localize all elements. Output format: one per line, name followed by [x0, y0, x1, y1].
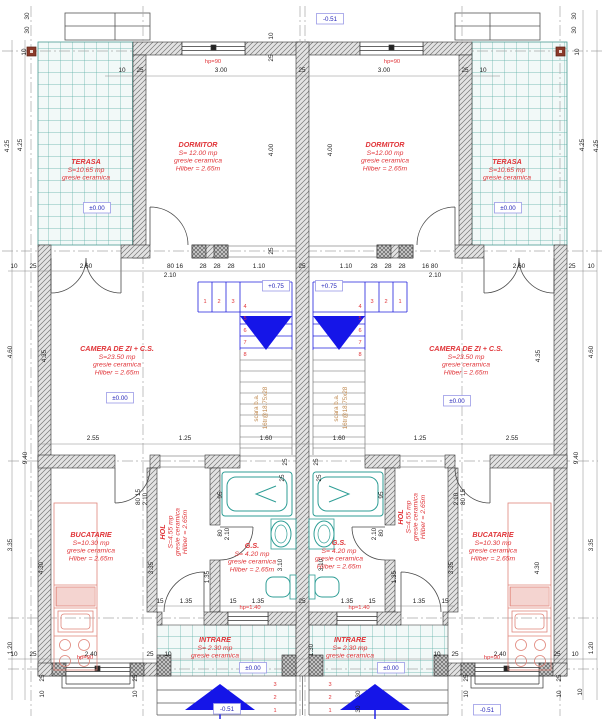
dim-label: 25 — [461, 67, 469, 74]
step-number: 1 — [398, 299, 401, 305]
room-label-gs-left: G.S. — [245, 541, 259, 550]
room-label-gs-left: gresie ceramica — [228, 559, 276, 566]
dim-label: 4.30 — [534, 561, 541, 574]
parapet-label: hp=90 — [77, 655, 93, 661]
dim-label: 4.25 — [593, 139, 600, 152]
dim-label: 10 — [132, 690, 139, 698]
step-number: 5 — [243, 316, 246, 322]
step-number: 2 — [384, 299, 387, 305]
dim-label: 3.35 — [7, 538, 14, 551]
dim-label: 3.35 — [448, 561, 455, 574]
dim-label: 30 — [355, 690, 362, 698]
stair-note: 16tr@18.75x28 — [342, 386, 349, 429]
dim-label: 25 — [268, 54, 275, 62]
step-number: 3 — [328, 682, 331, 688]
dim-label: 25 — [556, 674, 563, 682]
dim-label: 2.10 — [453, 492, 460, 505]
room-label-dormitor-left: S= 12.00 mp — [179, 150, 218, 157]
dim-label: 10 — [10, 263, 18, 270]
room-label-terasa-right: S=10.65 mp — [489, 167, 526, 174]
parapet-label: hp=1.40 — [348, 605, 369, 611]
level-marker: ±0.00 — [500, 205, 516, 212]
dim-label: 25 — [136, 67, 144, 74]
room-label-terasa-left: S=10.65 mp — [68, 167, 105, 174]
step-number: 1 — [328, 708, 331, 714]
parapet-label: hp=1.40 — [239, 605, 260, 611]
dim-label: 3.35 — [588, 538, 595, 551]
dim-label: 2.10 — [224, 527, 231, 540]
step-number: 4 — [358, 304, 361, 310]
dim-label: 15 — [156, 598, 164, 605]
dim-label: 3.35 — [148, 561, 155, 574]
parapet-label: hp=90 — [384, 59, 400, 65]
dim-label: 25 — [29, 651, 37, 658]
dim-label: 1.20 — [7, 641, 14, 654]
dim-label: 1.35 — [204, 570, 211, 583]
dim-label: 28 — [384, 263, 392, 270]
dim-label: 4.00 — [327, 143, 334, 156]
step-number: 8 — [243, 352, 246, 358]
dim-label: 10 — [433, 651, 441, 658]
level-marker: +0.75 — [321, 283, 337, 290]
room-label-terasa-left: TERASA — [71, 157, 101, 166]
dim-label: 4.25 — [4, 139, 11, 152]
room-label-intrare-right: gresie ceramica — [326, 653, 374, 660]
dim-label: 30 — [24, 26, 31, 34]
level-marker: +0.75 — [268, 283, 284, 290]
dim-label: 28 — [370, 263, 378, 270]
level-marker: ±0.00 — [383, 665, 399, 672]
stair-note: scara b.a. — [333, 394, 340, 421]
room-label-intrare-left: gresie ceramica — [191, 653, 239, 660]
dim-label: 15 — [368, 598, 376, 605]
room-label-bucatarie-left: Hliber = 2.65m — [69, 555, 114, 562]
dim-label: 25 — [568, 263, 576, 270]
dim-label: 25 — [553, 651, 561, 658]
dim-label: 25 — [279, 474, 286, 482]
dim-label: 3.10 — [277, 558, 284, 571]
dim-label: 95 — [217, 491, 224, 499]
dim-label: 30 — [24, 12, 31, 20]
room-label-hol-left: S=4.55 mp — [167, 515, 174, 548]
dim-label: 4.35 — [535, 349, 542, 362]
dim-label: 80 — [217, 529, 224, 537]
dim-label: 1.60 — [260, 435, 273, 442]
dim-label: 1.25 — [179, 435, 192, 442]
step-number: 2 — [328, 695, 331, 701]
dim-label: 2.60 — [513, 263, 526, 270]
room-label-dormitor-left: Hliber = 2.65m — [176, 165, 221, 172]
room-label-terasa-left: gresie ceramica — [62, 175, 110, 182]
room-label-hol-right: gresie ceramica — [413, 493, 420, 541]
room-label-camera-zi-left: S=23.50 mp — [99, 354, 136, 361]
room-label-hol-left: HOL — [158, 524, 167, 539]
dim-label: 1.35 — [391, 570, 398, 583]
dim-label: 3.10 — [318, 558, 325, 571]
dim-label: 10 — [577, 688, 584, 696]
dim-label: 80 15 — [135, 489, 142, 505]
dim-label: 2.10 — [429, 272, 442, 279]
step-number: 2 — [273, 695, 276, 701]
room-label-terasa-right: gresie ceramica — [483, 175, 531, 182]
dim-label: 25 — [316, 474, 323, 482]
level-marker: ±0.00 — [245, 665, 261, 672]
dim-label: 1.10 — [253, 263, 266, 270]
dim-label: 4.60 — [7, 345, 14, 358]
level-marker: -0.51 — [323, 16, 338, 23]
room-label-intrare-right: S= 2.30 mp — [333, 645, 368, 652]
dim-label: 2.10 — [164, 272, 177, 279]
dim-label: 30 — [571, 12, 578, 20]
room-label-gs-left: Hliber = 2.65m — [230, 566, 275, 573]
room-label-camera-zi-right: Hliber = 2.65m — [444, 369, 489, 376]
dim-label: 30 — [571, 26, 578, 34]
dim-label: 15 — [229, 598, 237, 605]
dim-label: 28 — [213, 263, 221, 270]
dim-label: 25 — [268, 247, 275, 255]
room-label-camera-zi-left: Hliber = 2.65m — [95, 369, 140, 376]
room-label-bucatarie-left: S=10.30 mp — [73, 540, 110, 547]
dim-label: 10 — [571, 651, 579, 658]
room-label-bucatarie-left: BUCATARIE — [70, 530, 111, 539]
stair-note: 16tr@18.75x28 — [262, 386, 269, 429]
dim-label: 2.10 — [371, 527, 378, 540]
step-number: 7 — [243, 340, 246, 346]
dim-label: 2.55 — [87, 435, 100, 442]
dim-label: 3.00 — [378, 67, 391, 74]
room-label-dormitor-right: DORMITOR — [366, 140, 406, 149]
parapet-label: hp=90 — [205, 59, 221, 65]
step-number: 7 — [358, 340, 361, 346]
room-label-bucatarie-right: Hliber = 2.65m — [471, 555, 516, 562]
dim-label: 10 — [268, 32, 275, 40]
room-label-gs-right: S= 4.20 mp — [322, 548, 357, 555]
step-number: 5 — [358, 316, 361, 322]
room-label-hol-right: HOL — [396, 509, 405, 524]
room-label-camera-zi-left: CAMERA DE ZI + C.S. — [80, 344, 154, 353]
dim-label: 10 — [574, 48, 581, 56]
dim-label: 80 15 — [460, 489, 467, 505]
dim-label: 25 — [298, 67, 306, 74]
step-number: 4 — [243, 304, 246, 310]
dim-label: 9.40 — [22, 451, 29, 464]
dim-label: 1.35 — [180, 598, 193, 605]
dim-label: 10 — [463, 690, 470, 698]
dim-label: 1.35 — [252, 598, 265, 605]
step-number: 6 — [243, 328, 246, 334]
dim-label: 10 — [587, 263, 595, 270]
dim-label: 28 — [199, 263, 207, 270]
room-label-intrare-left: S= 2.30 mp — [198, 645, 233, 652]
step-number: 1 — [273, 708, 276, 714]
room-label-camera-zi-right: S=23.50 mp — [448, 354, 485, 361]
dim-label: 3.00 — [215, 67, 228, 74]
dim-label: 1.35 — [341, 598, 354, 605]
room-label-dormitor-right: gresie ceramica — [361, 158, 409, 165]
dim-label: 1.60 — [333, 435, 346, 442]
dim-label: 25 — [313, 458, 320, 466]
dim-label: 10 — [479, 67, 487, 74]
room-label-hol-right: Hliber = 2.65m — [420, 494, 427, 539]
dim-label: 25 — [282, 458, 289, 466]
room-label-bucatarie-right: BUCATARIE — [472, 530, 513, 539]
room-label-bucatarie-left: gresie ceramica — [67, 548, 115, 555]
dim-label: 16 80 — [422, 263, 438, 270]
dim-label: 2.10 — [142, 492, 149, 505]
step-number: 3 — [273, 682, 276, 688]
room-label-hol-left: gresie ceramica — [175, 508, 182, 556]
dim-label: 25 — [39, 674, 46, 682]
dim-label: 1.30 — [308, 643, 315, 656]
room-label-camera-zi-right: gresie ceramica — [442, 362, 490, 369]
dim-label: 25 — [298, 598, 306, 605]
room-label-bucatarie-right: gresie ceramica — [469, 548, 517, 555]
dim-label: 25 — [463, 674, 470, 682]
room-label-camera-zi-left: gresie ceramica — [93, 362, 141, 369]
floor-plan-drawing: TERASAS=10.65 mpgresie ceramicaTERASAS=1… — [0, 0, 605, 720]
level-marker: ±0.00 — [89, 205, 105, 212]
step-number: 1 — [203, 299, 206, 305]
kitchen-unit — [510, 587, 549, 606]
dim-label: 2.60 — [80, 263, 93, 270]
level-marker: -0.51 — [220, 706, 235, 713]
step-number: 3 — [370, 299, 373, 305]
kitchen-unit — [56, 587, 95, 606]
room-label-camera-zi-right: CAMERA DE ZI + C.S. — [429, 344, 503, 353]
dim-label: 4.00 — [268, 143, 275, 156]
dim-label: 10 — [39, 690, 46, 698]
room-label-dormitor-left: DORMITOR — [179, 140, 219, 149]
dim-label: 4.60 — [588, 345, 595, 358]
dim-label: 1.25 — [414, 435, 427, 442]
dim-label: 80 — [378, 529, 385, 537]
step-number: 2 — [217, 299, 220, 305]
room-label-hol-left: Hliber = 2.65m — [182, 509, 189, 554]
dim-label: 25 — [132, 674, 139, 682]
dim-label: 80 16 — [167, 263, 183, 270]
axis-marker-dot — [30, 50, 33, 53]
dim-label: 95 — [378, 491, 385, 499]
dim-label: 1.35 — [413, 598, 426, 605]
dim-label: 4.25 — [579, 138, 586, 151]
dim-label: 1.20 — [588, 641, 595, 654]
step-number: 3 — [231, 299, 234, 305]
room-label-bucatarie-right: S=10.30 mp — [475, 540, 512, 547]
dim-label: 25 — [298, 263, 306, 270]
room-label-hol-right: S=4.55 mp — [405, 500, 412, 533]
dim-label: 15 — [441, 598, 449, 605]
room-label-intrare-left: INTRARE — [199, 635, 231, 644]
dim-label: 25 — [146, 651, 154, 658]
level-marker: ±0.00 — [112, 395, 128, 402]
axis-marker-dot — [559, 50, 562, 53]
room-label-gs-left: S= 4.20 mp — [235, 551, 270, 558]
step-number: 8 — [358, 352, 361, 358]
stair-note: scara b.a. — [253, 394, 260, 421]
level-marker: -0.51 — [480, 707, 495, 714]
dim-label: 25 — [29, 263, 37, 270]
step-number: 6 — [358, 328, 361, 334]
room-label-intrare-right: INTRARE — [334, 635, 366, 644]
dim-label: 10 — [556, 690, 563, 698]
dim-label: 10 — [164, 651, 172, 658]
dim-label: 2.55 — [506, 435, 519, 442]
room-label-terasa-right: TERASA — [492, 157, 522, 166]
room-label-dormitor-right: Hliber = 2.65m — [363, 165, 408, 172]
room-label-dormitor-left: gresie ceramica — [174, 158, 222, 165]
dim-label: 28 — [398, 263, 406, 270]
level-marker: ±0.00 — [449, 398, 465, 405]
dim-label: 10 — [118, 67, 126, 74]
dim-label: 25 — [451, 651, 459, 658]
dim-label: 1.10 — [340, 263, 353, 270]
dim-label: 28 — [227, 263, 235, 270]
floor-plan-canvas: TERASAS=10.65 mpgresie ceramicaTERASAS=1… — [0, 0, 605, 720]
dim-label: 4.30 — [38, 561, 45, 574]
room-label-dormitor-right: S=12.00 mp — [367, 150, 404, 157]
room-label-gs-right: G.S. — [332, 538, 346, 547]
dim-label: 30 — [355, 705, 362, 713]
dim-label: 4.35 — [41, 349, 48, 362]
parapet-label: hp=90 — [484, 655, 500, 661]
dim-label: 4.25 — [17, 138, 24, 151]
dim-label: 9.40 — [573, 451, 580, 464]
